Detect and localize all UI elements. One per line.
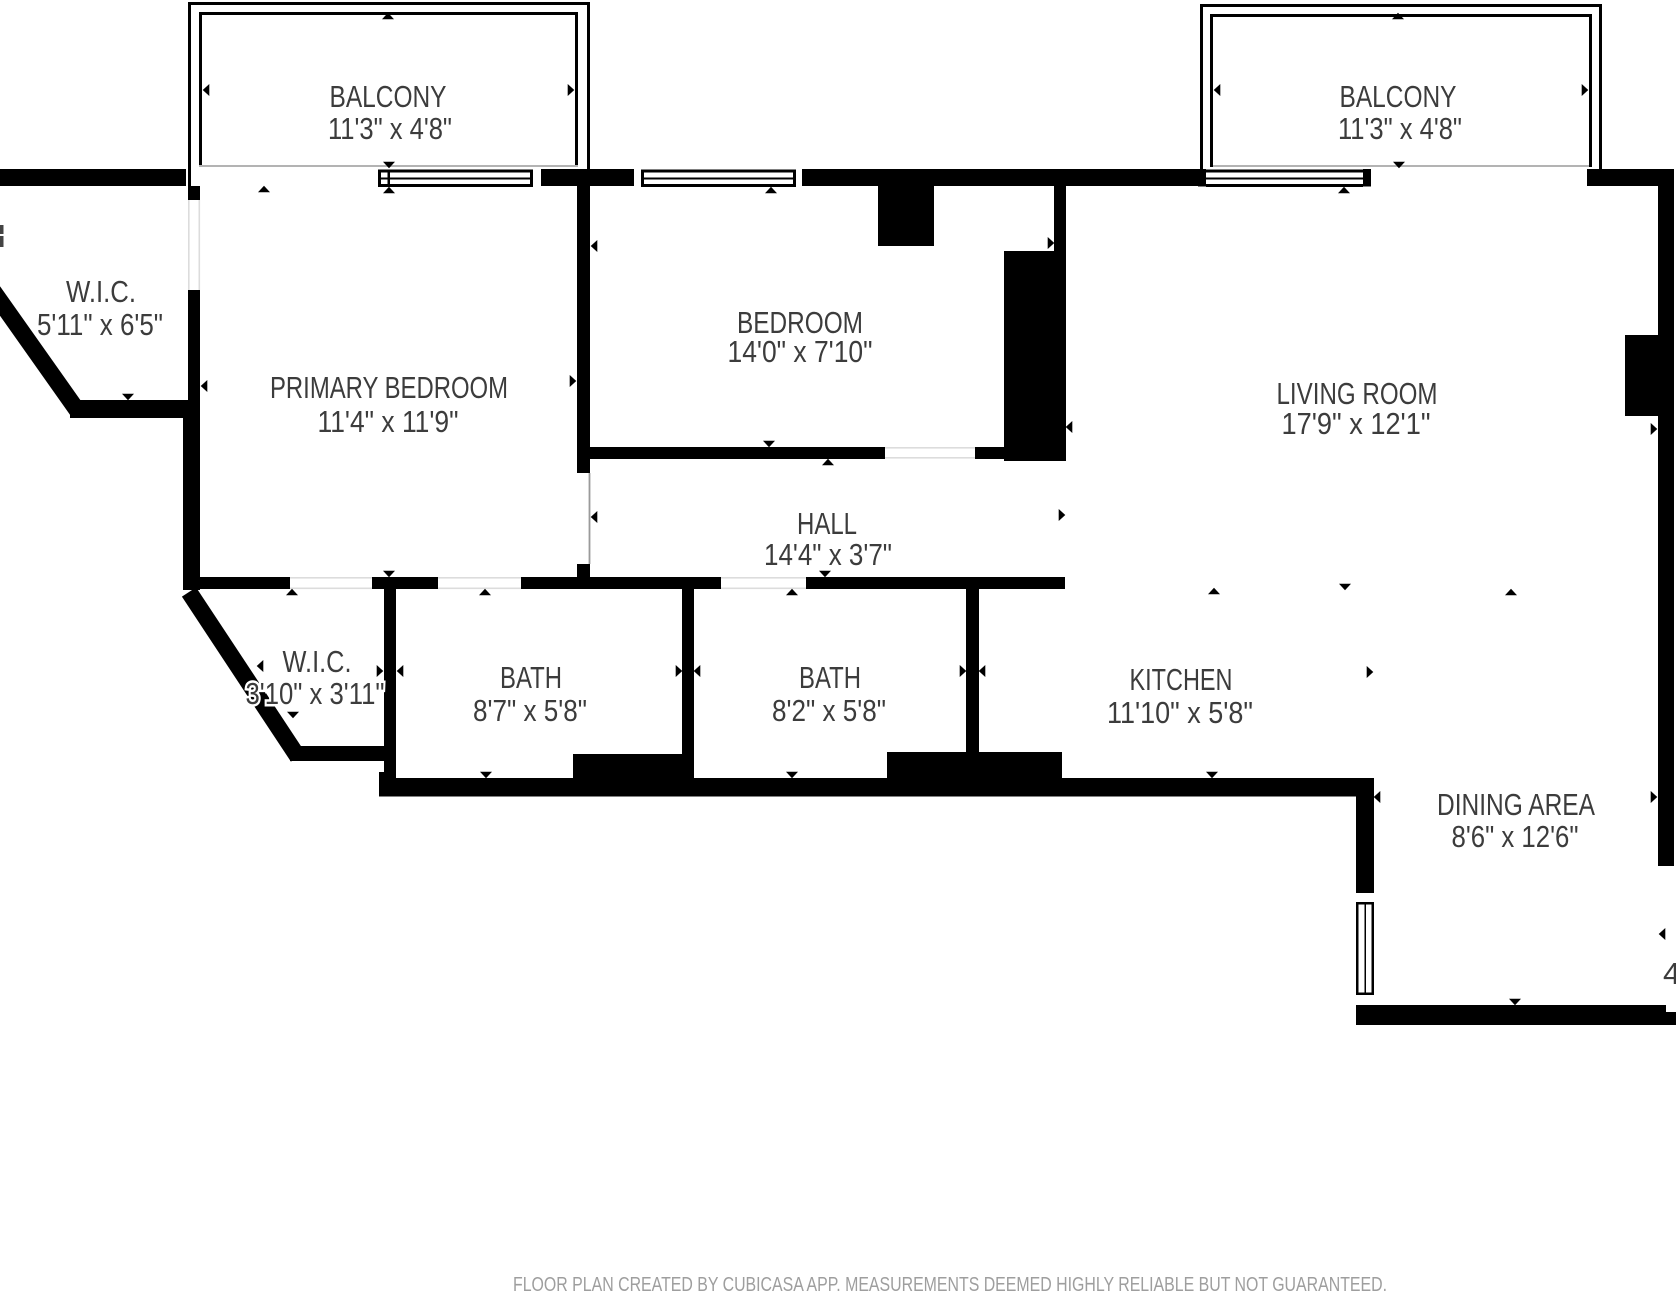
svg-text:W.I.C.: W.I.C. [283, 644, 352, 679]
svg-text:BALCONY: BALCONY [1340, 79, 1457, 114]
svg-text:HALL: HALL [797, 506, 857, 541]
svg-text:11'3" x 4'8": 11'3" x 4'8" [328, 111, 452, 146]
svg-text:17'9" x 12'1": 17'9" x 12'1" [1282, 406, 1431, 441]
svg-text:8'6" x 12'6": 8'6" x 12'6" [1452, 819, 1579, 854]
svg-text:FLOOR PLAN CREATED BY CUBICASA: FLOOR PLAN CREATED BY CUBICASA APP. MEAS… [513, 1273, 1387, 1296]
svg-text:BATH: BATH [500, 660, 562, 695]
svg-text:11'4" x 11'9": 11'4" x 11'9" [318, 404, 459, 439]
svg-text:4: 4 [1663, 956, 1676, 991]
svg-text:8'2" x 5'8": 8'2" x 5'8" [772, 693, 886, 728]
svg-text:W.I.C.: W.I.C. [66, 274, 136, 309]
svg-text:5'11" x 6'5": 5'11" x 6'5" [37, 307, 163, 342]
svg-text:8'7" x 5'8": 8'7" x 5'8" [473, 693, 587, 728]
svg-text:BATH: BATH [799, 660, 861, 695]
svg-text:KITCHEN: KITCHEN [1130, 662, 1233, 697]
svg-text:PRIMARY BEDROOM: PRIMARY BEDROOM [270, 370, 508, 405]
svg-text:14'4" x 3'7": 14'4" x 3'7" [764, 537, 892, 572]
svg-text:14'0" x 7'10": 14'0" x 7'10" [728, 334, 873, 369]
svg-text:DINING AREA: DINING AREA [1437, 787, 1595, 822]
svg-text:3'10" x 3'11": 3'10" x 3'11" [246, 676, 385, 711]
svg-text:BALCONY: BALCONY [330, 79, 447, 114]
svg-text:11'3" x 4'8": 11'3" x 4'8" [1338, 111, 1462, 146]
svg-text:11'10" x 5'8": 11'10" x 5'8" [1107, 695, 1253, 730]
